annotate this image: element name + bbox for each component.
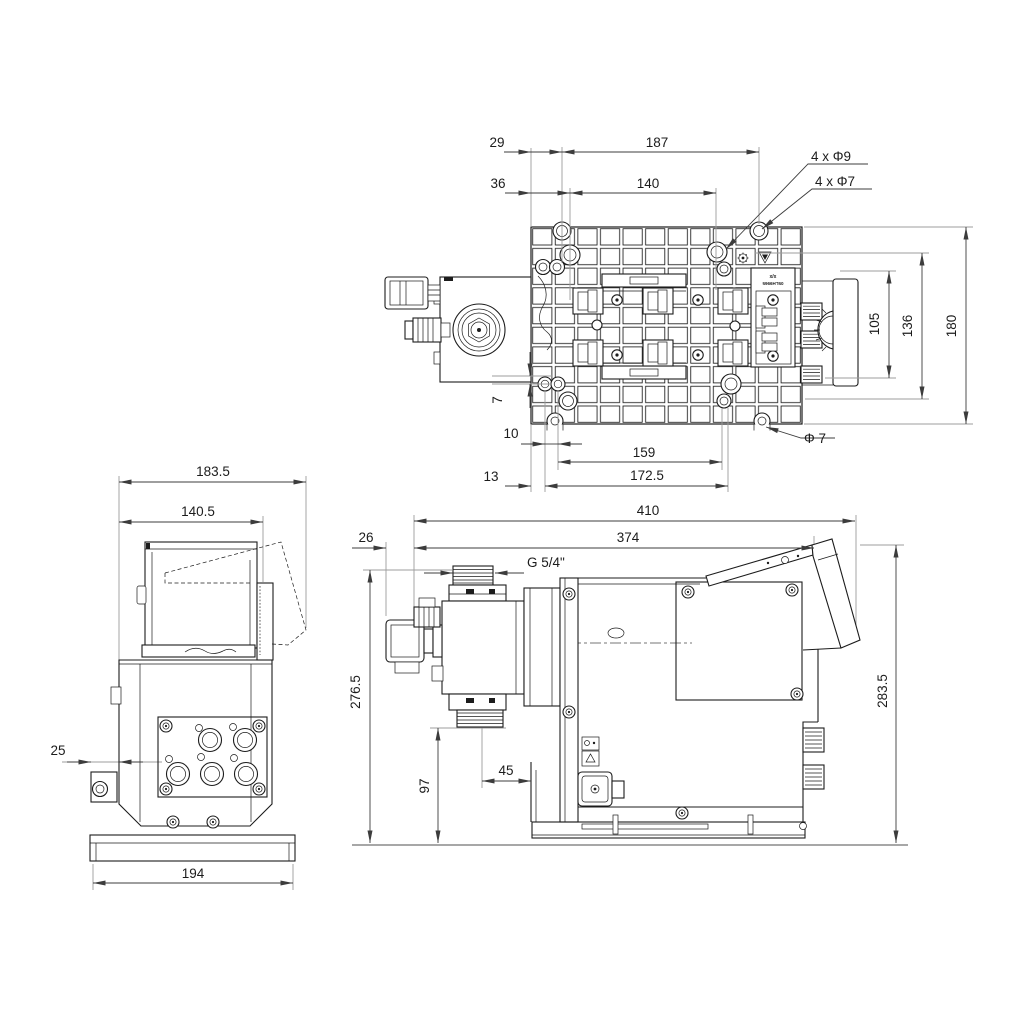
- dim-374: 374: [414, 530, 814, 548]
- dim-36: 36: [490, 176, 570, 193]
- dim-label-136: 136: [900, 315, 915, 338]
- dim-136: 136: [900, 253, 922, 399]
- dim-label-172-5: 172.5: [630, 468, 664, 483]
- cable-gland-side: [386, 598, 442, 673]
- pump-dimensional-drawing: x/x 05LH9965: [0, 0, 1024, 1024]
- dim-label-159: 159: [633, 445, 656, 460]
- dim-label-105: 105: [867, 313, 882, 336]
- dim-label-374: 374: [617, 530, 640, 545]
- control-display: [706, 539, 860, 650]
- leader-d7: Φ 7: [766, 427, 835, 446]
- dim-label-180: 180: [944, 315, 959, 338]
- dim-26: 26: [352, 530, 386, 548]
- dim-label-26: 26: [358, 530, 373, 545]
- dosing-head-side: [432, 566, 560, 727]
- dim-label-410: 410: [637, 503, 660, 518]
- dim-label-283-5: 283.5: [875, 674, 890, 708]
- left-view: 183.5 140.5 25 194: [50, 464, 306, 890]
- dim-label-29: 29: [489, 135, 504, 150]
- nameplate-line1: x/x: [770, 274, 777, 280]
- wall-bracket: [91, 772, 117, 802]
- dim-140-5: 140.5: [119, 504, 263, 522]
- dim-283-5: 283.5: [875, 545, 896, 843]
- dimensional-drawing-page: x/x 05LH9965: [0, 0, 1024, 1024]
- dim-label-4xd9: 4 x Φ9: [811, 149, 851, 164]
- top-view: x/x 05LH9965: [385, 135, 973, 492]
- dim-label-13: 13: [483, 469, 498, 484]
- dim-label-25: 25: [50, 743, 65, 758]
- dim-label-140-5: 140.5: [181, 504, 215, 519]
- dim-25: 25: [50, 743, 143, 762]
- dim-13: 13: [483, 469, 531, 486]
- nameplate-line2: 05LH9965: [762, 281, 784, 286]
- nameplate-panel: x/x 05LH9965: [751, 268, 795, 367]
- dim-label-276-5: 276.5: [348, 675, 363, 709]
- rib-block: [801, 303, 822, 320]
- side-connector-1: [803, 728, 824, 752]
- dim-180: 180: [944, 227, 966, 424]
- dim-label-140: 140: [637, 176, 660, 191]
- side-view: 410 374 26 G 5/4" 276.5 97 45 28: [348, 503, 908, 845]
- dim-140: 140: [570, 176, 716, 193]
- discharge-valve-thread: [453, 566, 493, 585]
- dim-172-5: 172.5: [545, 468, 728, 486]
- dim-label-4xd7: 4 x Φ7: [815, 174, 855, 189]
- dim-105: 105: [867, 271, 889, 378]
- dim-159: 159: [558, 445, 722, 462]
- warning-label: [582, 737, 599, 766]
- dim-label-thread: G 5/4": [527, 555, 565, 570]
- dim-183-5: 183.5: [119, 464, 306, 482]
- dim-97: 97: [417, 728, 438, 843]
- dim-label-194: 194: [182, 866, 205, 881]
- dim-label-45: 45: [498, 763, 513, 778]
- base-plate-end: [90, 835, 295, 861]
- dim-29: 29: [489, 135, 562, 152]
- dim-10: 10: [503, 426, 582, 444]
- dim-label-10: 10: [503, 426, 518, 441]
- display-dashed-outline: [165, 542, 306, 645]
- dim-label-97: 97: [417, 778, 432, 793]
- dim-label-187: 187: [646, 135, 669, 150]
- control-cover-end: [137, 542, 273, 660]
- suction-valve-thread: [457, 710, 503, 727]
- leader-4xd7: 4 x Φ7: [762, 174, 872, 229]
- left-view-extension-lines: [62, 476, 306, 890]
- rib-block: [801, 366, 822, 383]
- dim-label-36: 36: [490, 176, 505, 191]
- dim-label-7: 7: [490, 396, 505, 404]
- dim-410: 410: [414, 503, 855, 521]
- dim-187: 187: [562, 135, 759, 152]
- dim-45: 45: [482, 763, 531, 781]
- dim-label-183-5: 183.5: [196, 464, 230, 479]
- dim-label-d7: Φ 7: [804, 431, 826, 446]
- mains-connector: [578, 772, 624, 806]
- side-connector-2: [803, 765, 824, 789]
- dim-194: 194: [93, 866, 293, 883]
- dim-276-5: 276.5: [348, 570, 370, 843]
